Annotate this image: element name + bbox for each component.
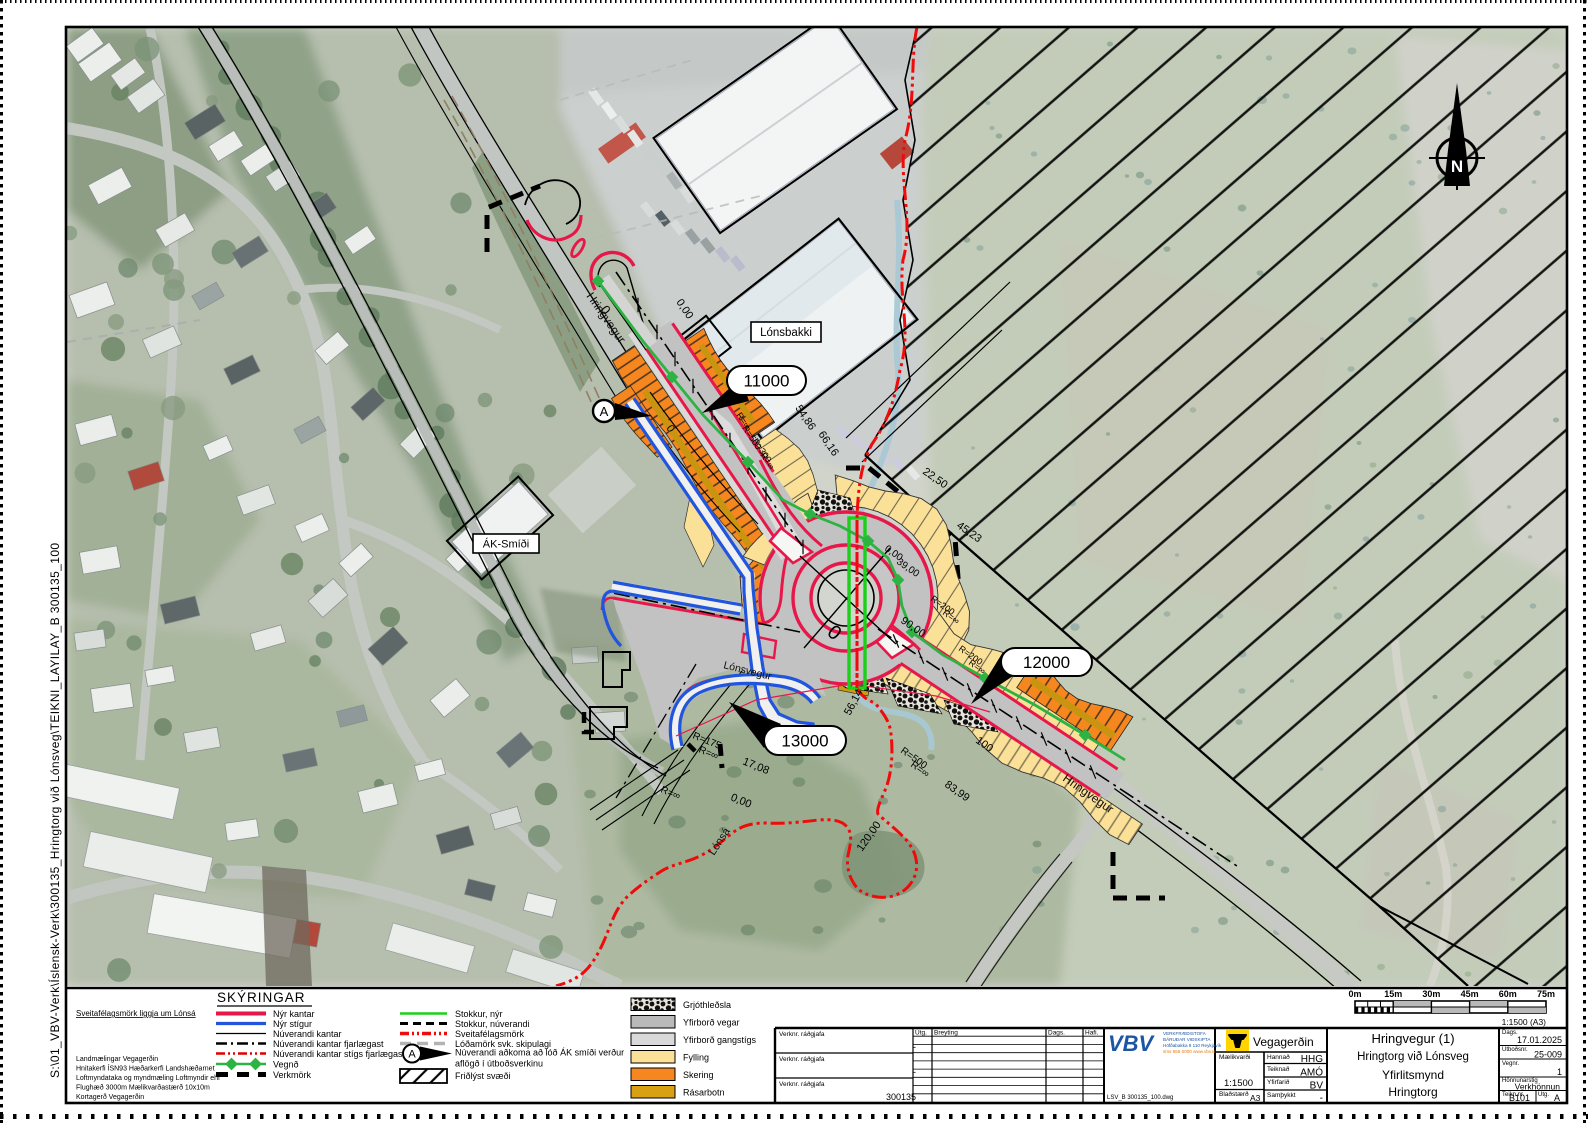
svg-text:Rásarbotn: Rásarbotn (683, 1088, 725, 1098)
svg-text:sími 555 0000 www.vbv.is: sími 555 0000 www.vbv.is (1163, 1049, 1216, 1054)
svg-text:Yfirborð vegar: Yfirborð vegar (683, 1018, 740, 1028)
svg-text:SKÝRINGAR: SKÝRINGAR (217, 990, 306, 1005)
svg-text:Fylling: Fylling (683, 1053, 709, 1063)
svg-text:Samþykkt: Samþykkt (1267, 1092, 1296, 1099)
svg-text:15m: 15m (1384, 989, 1402, 999)
svg-text:Mælikvarði: Mælikvarði (1219, 1053, 1250, 1061)
svg-text:Hnitakerfi ÍSN93 Hæðarkerfi: Hnitakerfi ÍSN93 Hæðarkerfi Landshæðarne… (76, 1064, 215, 1073)
svg-text:Núverandi kantar stígs fjarlæg: Núverandi kantar stígs fjarlægast (273, 1049, 406, 1059)
svg-text:Verknr. ráðgjafa: Verknr. ráðgjafa (779, 1030, 825, 1038)
svg-text:Hringtorg við Lónsveg: Hringtorg við Lónsveg (1357, 1051, 1469, 1063)
svg-text:1:1500 (A3): 1:1500 (A3) (1502, 1017, 1547, 1027)
svg-text:BV: BV (1310, 1081, 1324, 1092)
svg-text:Flughæð 3000m Mælikvarðas: Flughæð 3000m Mælikvarðastærð 10x10m (76, 1084, 210, 1092)
svg-text:Vegnð: Vegnð (273, 1060, 299, 1070)
svg-text:Stokkur, nýr: Stokkur, nýr (455, 1009, 503, 1019)
svg-text:Breyting: Breyting (934, 1030, 958, 1037)
svg-text:HHG: HHG (1301, 1054, 1323, 1065)
svg-text:Sveitafélagsmörk: Sveitafélagsmörk (455, 1029, 525, 1039)
svg-text:12000: 12000 (1023, 653, 1070, 672)
svg-text:Vegagerðin: Vegagerðin (1253, 1035, 1314, 1049)
svg-text:1: 1 (1557, 1067, 1562, 1077)
svg-text:11000: 11000 (743, 372, 789, 391)
svg-text:aflögð í útboðsverkinu: aflögð í útboðsverkinu (455, 1059, 543, 1069)
svg-text:-: - (913, 1042, 916, 1052)
svg-text:Höfðabakka 9 110 Reykjavík: Höfðabakka 9 110 Reykjavík (1163, 1042, 1222, 1048)
svg-text:A: A (408, 1049, 416, 1061)
svg-text:AMÓ: AMÓ (1300, 1066, 1323, 1079)
svg-text:Nýr stígur: Nýr stígur (273, 1019, 312, 1029)
svg-text:A: A (600, 404, 609, 419)
svg-text:Dags.: Dags. (1502, 1030, 1518, 1036)
svg-text:A3: A3 (1250, 1093, 1261, 1103)
svg-text:Útboðsnr.: Útboðsnr. (1502, 1046, 1528, 1053)
svg-text:Útg.: Útg. (1538, 1091, 1549, 1098)
svg-text:Hringtorg: Hringtorg (1388, 1085, 1437, 1099)
svg-text:Yfirlitsmynd: Yfirlitsmynd (1382, 1068, 1444, 1082)
svg-text:-: - (913, 1067, 916, 1077)
svg-text:Nýr kantar: Nýr kantar (273, 1009, 315, 1019)
svg-text:Stokkur, núverandi: Stokkur, núverandi (455, 1019, 530, 1029)
svg-text:A: A (1554, 1093, 1560, 1103)
svg-text:Hafi.: Hafi. (1085, 1030, 1099, 1037)
svg-text:Skering: Skering (683, 1070, 714, 1080)
svg-text:Núverandi kantar fjarlægast: Núverandi kantar fjarlægast (273, 1039, 384, 1049)
svg-text:Útg.: Útg. (915, 1028, 927, 1037)
svg-text:Loftmyndataka og myndmæling: Loftmyndataka og myndmæling Loftmyndir e… (76, 1075, 220, 1082)
svg-text:Verkmörk: Verkmörk (273, 1070, 312, 1080)
svg-text:0m: 0m (1348, 989, 1361, 999)
svg-text:17.01.2025: 17.01.2025 (1517, 1035, 1562, 1045)
svg-text:N: N (1451, 157, 1463, 176)
svg-text:Teiknað: Teiknað (1267, 1065, 1290, 1073)
svg-text:Sveitafélagsmörk liggja um Lón: Sveitafélagsmörk liggja um Lónsá (76, 1009, 196, 1018)
svg-text:Verknr. ráðgjafa: Verknr. ráðgjafa (779, 1055, 825, 1063)
svg-text:Friðlýst svæði: Friðlýst svæði (455, 1071, 511, 1081)
svg-text:VERKFRÆÐISTOFA: VERKFRÆÐISTOFA (1163, 1031, 1207, 1036)
svg-text:Grjóthleðsla: Grjóthleðsla (683, 1000, 731, 1010)
svg-text:LSV_B 300135_100.dwg: LSV_B 300135_100.dwg (1107, 1095, 1173, 1101)
svg-text:30m: 30m (1422, 989, 1440, 999)
svg-text:75m: 75m (1537, 989, 1555, 999)
svg-text:Yfirborð gangstígs: Yfirborð gangstígs (683, 1035, 757, 1045)
svg-text:Yfirfarið: Yfirfarið (1267, 1078, 1290, 1086)
svg-text:Verknr. ráðgjafa: Verknr. ráðgjafa (779, 1080, 825, 1088)
svg-text:13000: 13000 (781, 732, 828, 751)
svg-text:B101: B101 (1509, 1093, 1530, 1103)
svg-text:25-009: 25-009 (1534, 1050, 1562, 1060)
svg-text:BÁRUÐAR VIÐSKIPTA: BÁRUÐAR VIÐSKIPTA (1163, 1036, 1211, 1042)
svg-text:1:1500: 1:1500 (1224, 1078, 1253, 1089)
svg-text:Núverandi aðkoma að lóð ÁK smí: Núverandi aðkoma að lóð ÁK smíði verður (455, 1048, 624, 1058)
svg-text:ÁK-Smíði: ÁK-Smíði (483, 538, 529, 551)
svg-text:S:\01_VBV-Verk\Íslensk-Verk\30: S:\01_VBV-Verk\Íslensk-Verk\300135_Hring… (47, 543, 62, 1078)
svg-text:Kortagerð Vegagerðin: Kortagerð Vegagerðin (76, 1093, 144, 1101)
svg-text:Hringvegur (1): Hringvegur (1) (1371, 1031, 1454, 1046)
svg-text:Landmælingar Vegagerðin: Landmælingar Vegagerðin (76, 1055, 158, 1063)
svg-text:Lónsbakki: Lónsbakki (760, 327, 812, 339)
svg-text:VBV: VBV (1108, 1031, 1156, 1056)
svg-text:300135: 300135 (886, 1092, 916, 1102)
svg-text:Vegnr.: Vegnr. (1502, 1061, 1519, 1067)
svg-text:Blaðstærð: Blaðstærð (1219, 1090, 1249, 1098)
svg-text:45m: 45m (1461, 989, 1479, 999)
svg-text:60m: 60m (1499, 989, 1517, 999)
svg-text:Dags.: Dags. (1048, 1030, 1065, 1037)
svg-text:Núverandi kantar: Núverandi kantar (273, 1029, 342, 1039)
svg-text:Hannað: Hannað (1267, 1053, 1290, 1061)
svg-text:Verkhönnun: Verkhönnun (1515, 1082, 1561, 1092)
